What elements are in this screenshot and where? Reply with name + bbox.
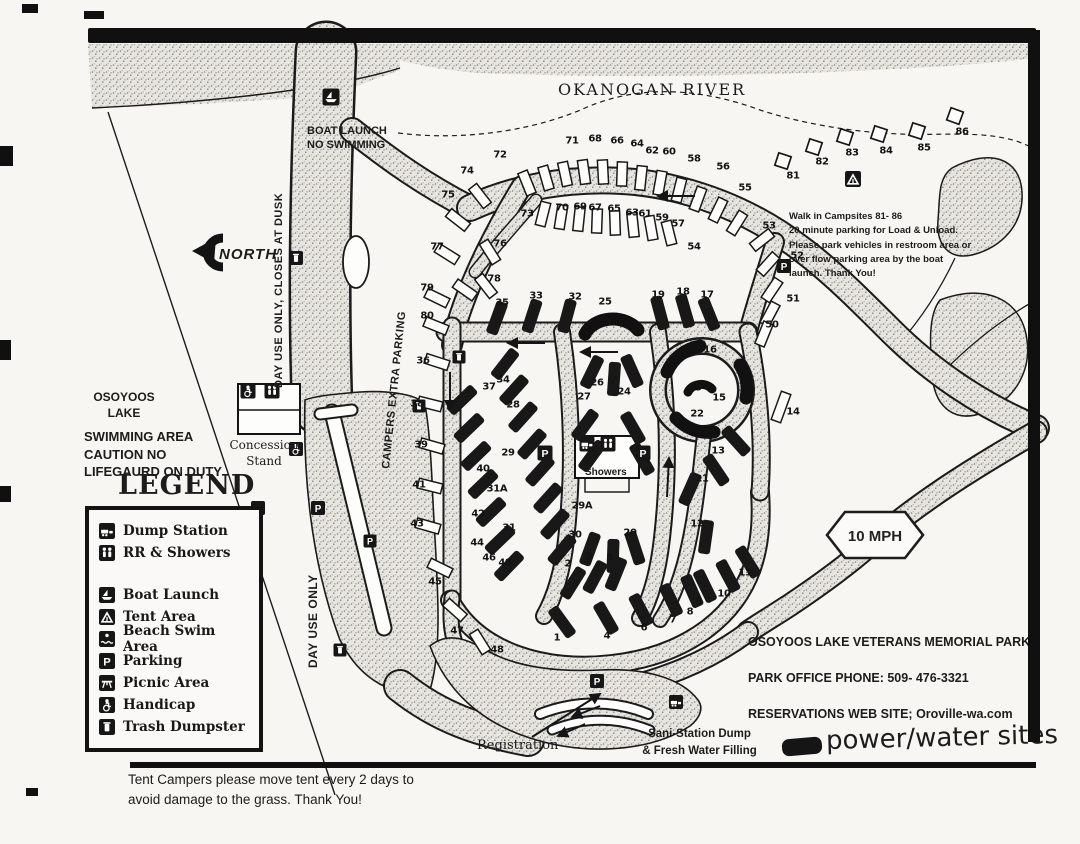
restroom-icon xyxy=(265,384,280,399)
trash-icon xyxy=(453,351,466,364)
handicap-icon xyxy=(99,697,115,713)
restroom-icon xyxy=(99,545,115,561)
legend-item-label: Boat Launch xyxy=(123,587,219,603)
parking-icon xyxy=(99,653,115,669)
scan-artifact-mark-3 xyxy=(0,146,13,166)
tent-icon xyxy=(99,609,115,625)
legend-box: Dump StationRR & ShowersBoat LaunchTent … xyxy=(85,506,263,752)
parking-icon xyxy=(777,259,791,273)
handicap-icon xyxy=(241,384,256,399)
parking-icon xyxy=(636,446,651,461)
scan-artifact-mark-5 xyxy=(0,486,11,502)
speed-limit-sign: 10 MPH xyxy=(827,512,923,558)
dump-icon xyxy=(580,437,595,452)
tent-icon xyxy=(845,171,861,187)
parking-icon xyxy=(364,535,377,548)
dump-icon xyxy=(669,695,683,709)
scan-artifact-mark-6 xyxy=(26,788,38,796)
scan-artifact-bottom-bar xyxy=(130,762,1036,768)
boat-icon xyxy=(99,587,115,603)
legend-item-handicap: Handicap xyxy=(99,694,253,716)
legend-item-label: RR & Showers xyxy=(123,545,231,561)
parking-icon xyxy=(311,501,325,515)
scan-artifact-top-bar xyxy=(88,28,1036,43)
trash-icon xyxy=(334,644,347,657)
walkin-site-markers xyxy=(775,108,964,170)
legend-item-trash: Trash Dumpster xyxy=(99,716,253,738)
legend-item-dump: Dump Station xyxy=(99,520,253,542)
legend-item-label: Parking xyxy=(123,653,182,669)
handicap-icon xyxy=(289,442,303,456)
parking-icon xyxy=(538,446,553,461)
trash-icon xyxy=(99,719,115,735)
trash-icon xyxy=(413,400,426,413)
boat-icon xyxy=(323,89,340,106)
beach-icon xyxy=(99,631,115,647)
speed-limit-text: 10 MPH xyxy=(848,528,902,545)
dump-icon xyxy=(99,523,115,539)
legend-item-boat: Boat Launch xyxy=(99,584,253,606)
legend-item-label: Trash Dumpster xyxy=(123,719,245,735)
picnic-icon xyxy=(99,675,115,691)
scan-artifact-right-bar xyxy=(1028,30,1040,742)
restroom-icon xyxy=(601,437,616,452)
legend-item-label: Picnic Area xyxy=(123,675,209,691)
legend-item-label: Handicap xyxy=(123,697,195,713)
legend-item-label: Dump Station xyxy=(123,523,228,539)
trash-icon xyxy=(289,251,303,265)
legend-item-picnic: Picnic Area xyxy=(99,672,253,694)
legend-items: Dump StationRR & ShowersBoat LaunchTent … xyxy=(99,520,253,738)
scan-artifact-mark-4 xyxy=(0,340,11,360)
legend-item-label: Beach Swim Area xyxy=(123,623,253,655)
scan-artifact-mark-2 xyxy=(84,11,104,19)
scan-artifact-mark-1 xyxy=(22,4,38,13)
north-arrow-icon xyxy=(192,238,223,267)
scanned-park-map-page: P xyxy=(0,0,1080,844)
legend-item-restroom: RR & Showers xyxy=(99,542,253,564)
legend-item-beach: Beach Swim Area xyxy=(99,628,253,650)
parking-icon xyxy=(590,674,604,688)
